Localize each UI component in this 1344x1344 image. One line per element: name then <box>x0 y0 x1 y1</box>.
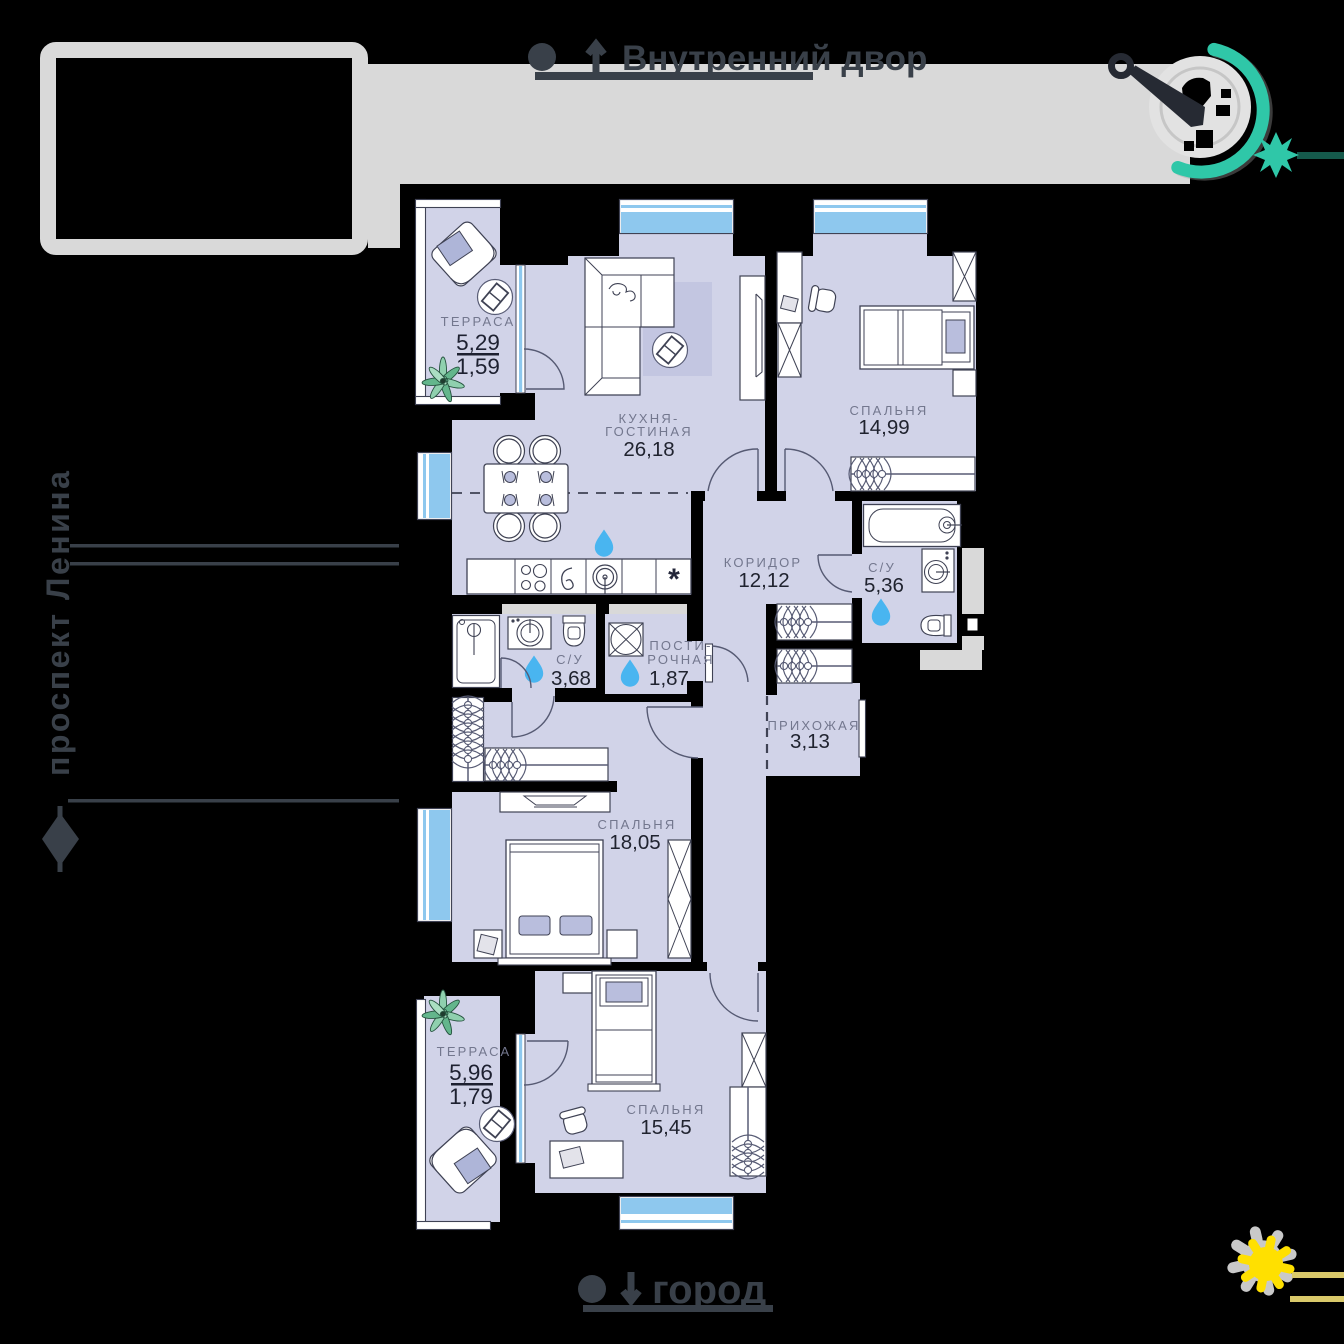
svg-text:КОРИДОР: КОРИДОР <box>724 555 803 570</box>
svg-text:5,96: 5,96 <box>449 1060 493 1085</box>
svg-text:РОЧНАЯ: РОЧНАЯ <box>647 652 715 667</box>
svg-text:СПАЛЬНЯ: СПАЛЬНЯ <box>598 817 677 832</box>
svg-text:3,13: 3,13 <box>790 730 830 753</box>
svg-text:1,79: 1,79 <box>449 1084 493 1109</box>
svg-text:26,18: 26,18 <box>623 438 674 461</box>
svg-text:5,36: 5,36 <box>864 574 904 597</box>
svg-text:14,99: 14,99 <box>858 416 909 439</box>
svg-text:15,45: 15,45 <box>640 1116 691 1139</box>
svg-text:18,05: 18,05 <box>609 831 660 854</box>
svg-text:ПОСТИ-: ПОСТИ- <box>649 638 712 653</box>
svg-text:ГОСТИНАЯ: ГОСТИНАЯ <box>605 424 693 439</box>
svg-text:1,87: 1,87 <box>649 667 689 690</box>
svg-text:3,68: 3,68 <box>551 667 591 690</box>
svg-text:ТЕРРАСА: ТЕРРАСА <box>441 314 516 329</box>
svg-text:12,12: 12,12 <box>738 569 789 592</box>
svg-text:ТЕРРАСА: ТЕРРАСА <box>437 1044 512 1059</box>
svg-text:1,59: 1,59 <box>456 354 500 379</box>
svg-text:*: * <box>668 563 680 596</box>
svg-text:5,29: 5,29 <box>456 330 500 355</box>
svg-text:С/У: С/У <box>556 652 584 667</box>
svg-text:С/У: С/У <box>868 560 896 575</box>
svg-text:проспект Ленина: проспект Ленина <box>40 469 76 776</box>
svg-text:СПАЛЬНЯ: СПАЛЬНЯ <box>627 1102 706 1117</box>
